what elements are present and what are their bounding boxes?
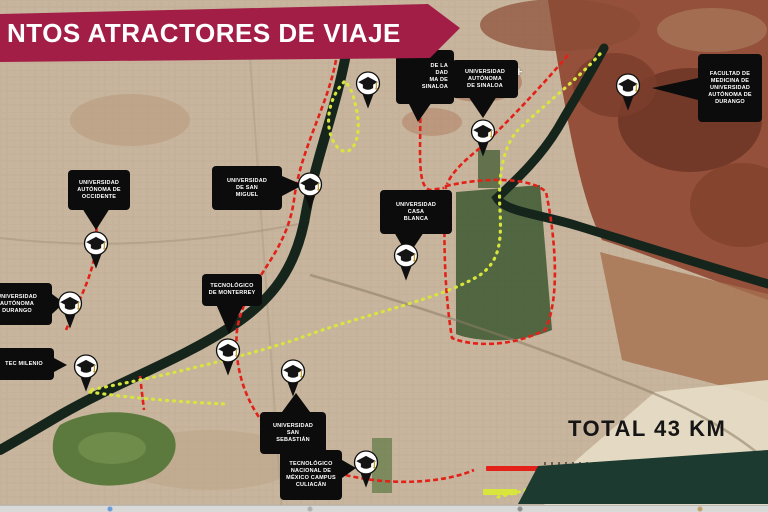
map-label-tecnm-culiacan: TECNOLÓGICONACIONAL DEMÉXICO CAMPUSCULIA… (280, 450, 342, 500)
map-label-occidente: UNIVERSIDADAUTÓNOMA DEOCCIDENTE (68, 170, 130, 210)
pin-tail (622, 96, 633, 111)
legend-swatch-1 (483, 489, 517, 495)
marker-pin-san-miguel (296, 171, 324, 211)
slide-map-screenshot: + (0, 0, 768, 512)
map-label-aut-durango: UNIVERSIDADAUTÓNOMADURANGO (0, 283, 52, 325)
marker-pin-sin-etiqueta (354, 70, 382, 110)
map-label-tec-monterrey: TECNOLÓGICODE MONTERREY (202, 274, 262, 306)
map-label-tec-milenio: TEC MILENIO (0, 348, 54, 380)
marker-pin-casa-blanca (392, 242, 420, 282)
pin-tail (64, 314, 75, 329)
pin-tail (400, 266, 411, 281)
pin-tail (222, 361, 233, 376)
marker-pin-aut-durango (56, 290, 84, 330)
pin-tail (360, 473, 371, 488)
marker-pin-uas (469, 118, 497, 158)
marker-pin-san-sebastian (279, 358, 307, 398)
marker-pin-tec-monterrey (214, 337, 242, 377)
pin-tail (287, 382, 298, 397)
marker-pin-tecnm-culiacan (352, 449, 380, 489)
map-label-san-sebastian: UNIVERSIDADSANSEBASTIÁN (260, 412, 326, 454)
map-label-casa-blanca: UNIVERSIDADCASABLANCA (380, 190, 452, 234)
marker-pin-fac-medicina (614, 72, 642, 112)
map-label-uas: UNIVERSIDADAUTÓNOMADE SINALOA (452, 60, 518, 98)
map-label-san-miguel: UNIVERSIDADDE SANMIGUEL (212, 166, 282, 210)
map-label-fac-medicina: FACULTAD DEMEDICINA DEUNIVERSIDADAUTÓNOM… (698, 54, 762, 122)
taskbar[interactable] (0, 505, 768, 512)
marker-pin-tec-milenio (72, 353, 100, 393)
pin-tail (80, 377, 91, 392)
legend-swatch-0 (486, 466, 544, 471)
pin-tail (304, 195, 315, 210)
pin-tail (90, 254, 101, 269)
total-distance-label: TOTAL 43 KM (568, 416, 726, 442)
pin-tail (362, 94, 373, 109)
page-title: NTOS ATRACTORES DE VIAJE (0, 18, 401, 49)
marker-pin-occidente (82, 230, 110, 270)
pin-tail (477, 142, 488, 157)
